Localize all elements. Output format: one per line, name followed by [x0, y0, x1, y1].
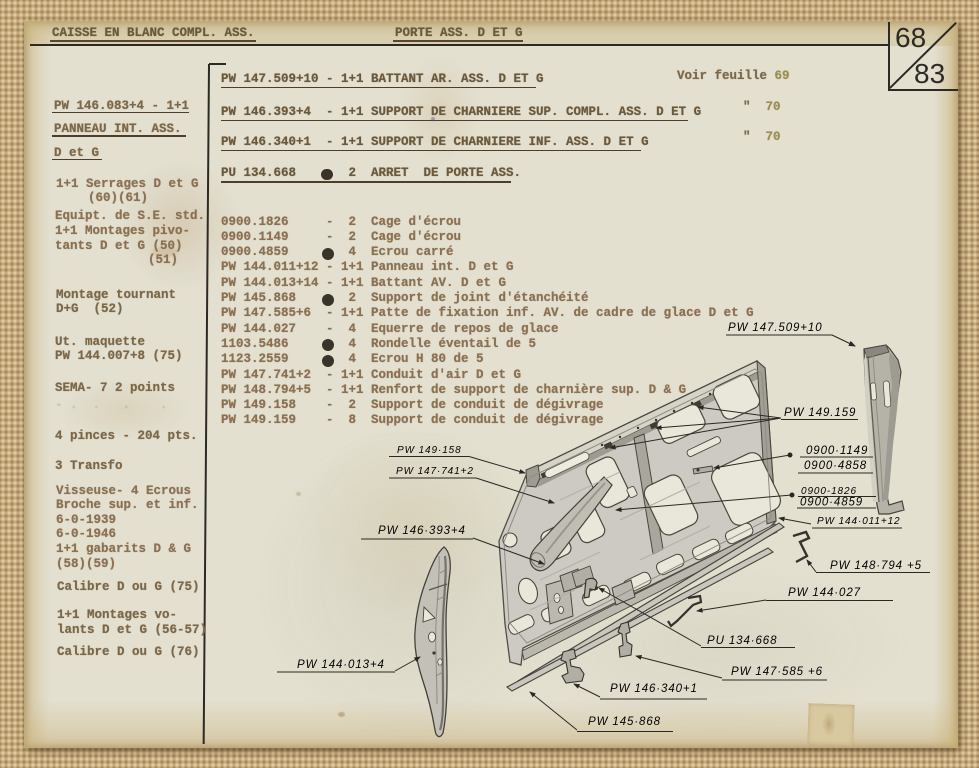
- svg-text:PW 144·011+12: PW 144·011+12: [817, 516, 901, 527]
- svg-text:0900·4859: 0900·4859: [800, 497, 863, 509]
- svg-text:PW 149.159: PW 149.159: [784, 407, 856, 419]
- svg-text:0900-1826: 0900-1826: [801, 486, 857, 497]
- svg-text:PW 146·393+4: PW 146·393+4: [378, 525, 466, 537]
- svg-text:PW 147.509+10: PW 147.509+10: [728, 322, 823, 334]
- svg-text:PW 145·868: PW 145·868: [588, 716, 661, 728]
- svg-text:PW 146·340+1: PW 146·340+1: [610, 683, 698, 695]
- svg-text:PW 148·794 +5: PW 148·794 +5: [830, 560, 922, 572]
- svg-text:0900·1149: 0900·1149: [806, 445, 868, 457]
- svg-text:PW 147·741+2: PW 147·741+2: [396, 466, 474, 477]
- svg-text:PU 134·668: PU 134·668: [707, 635, 777, 647]
- svg-text:PW 144·013+4: PW 144·013+4: [297, 659, 385, 671]
- svg-text:PW 149·158: PW 149·158: [397, 445, 462, 456]
- svg-text:PW 144·027: PW 144·027: [788, 587, 861, 599]
- svg-text:PW 147·585 +6: PW 147·585 +6: [731, 666, 823, 678]
- svg-text:0900·4858: 0900·4858: [804, 460, 867, 472]
